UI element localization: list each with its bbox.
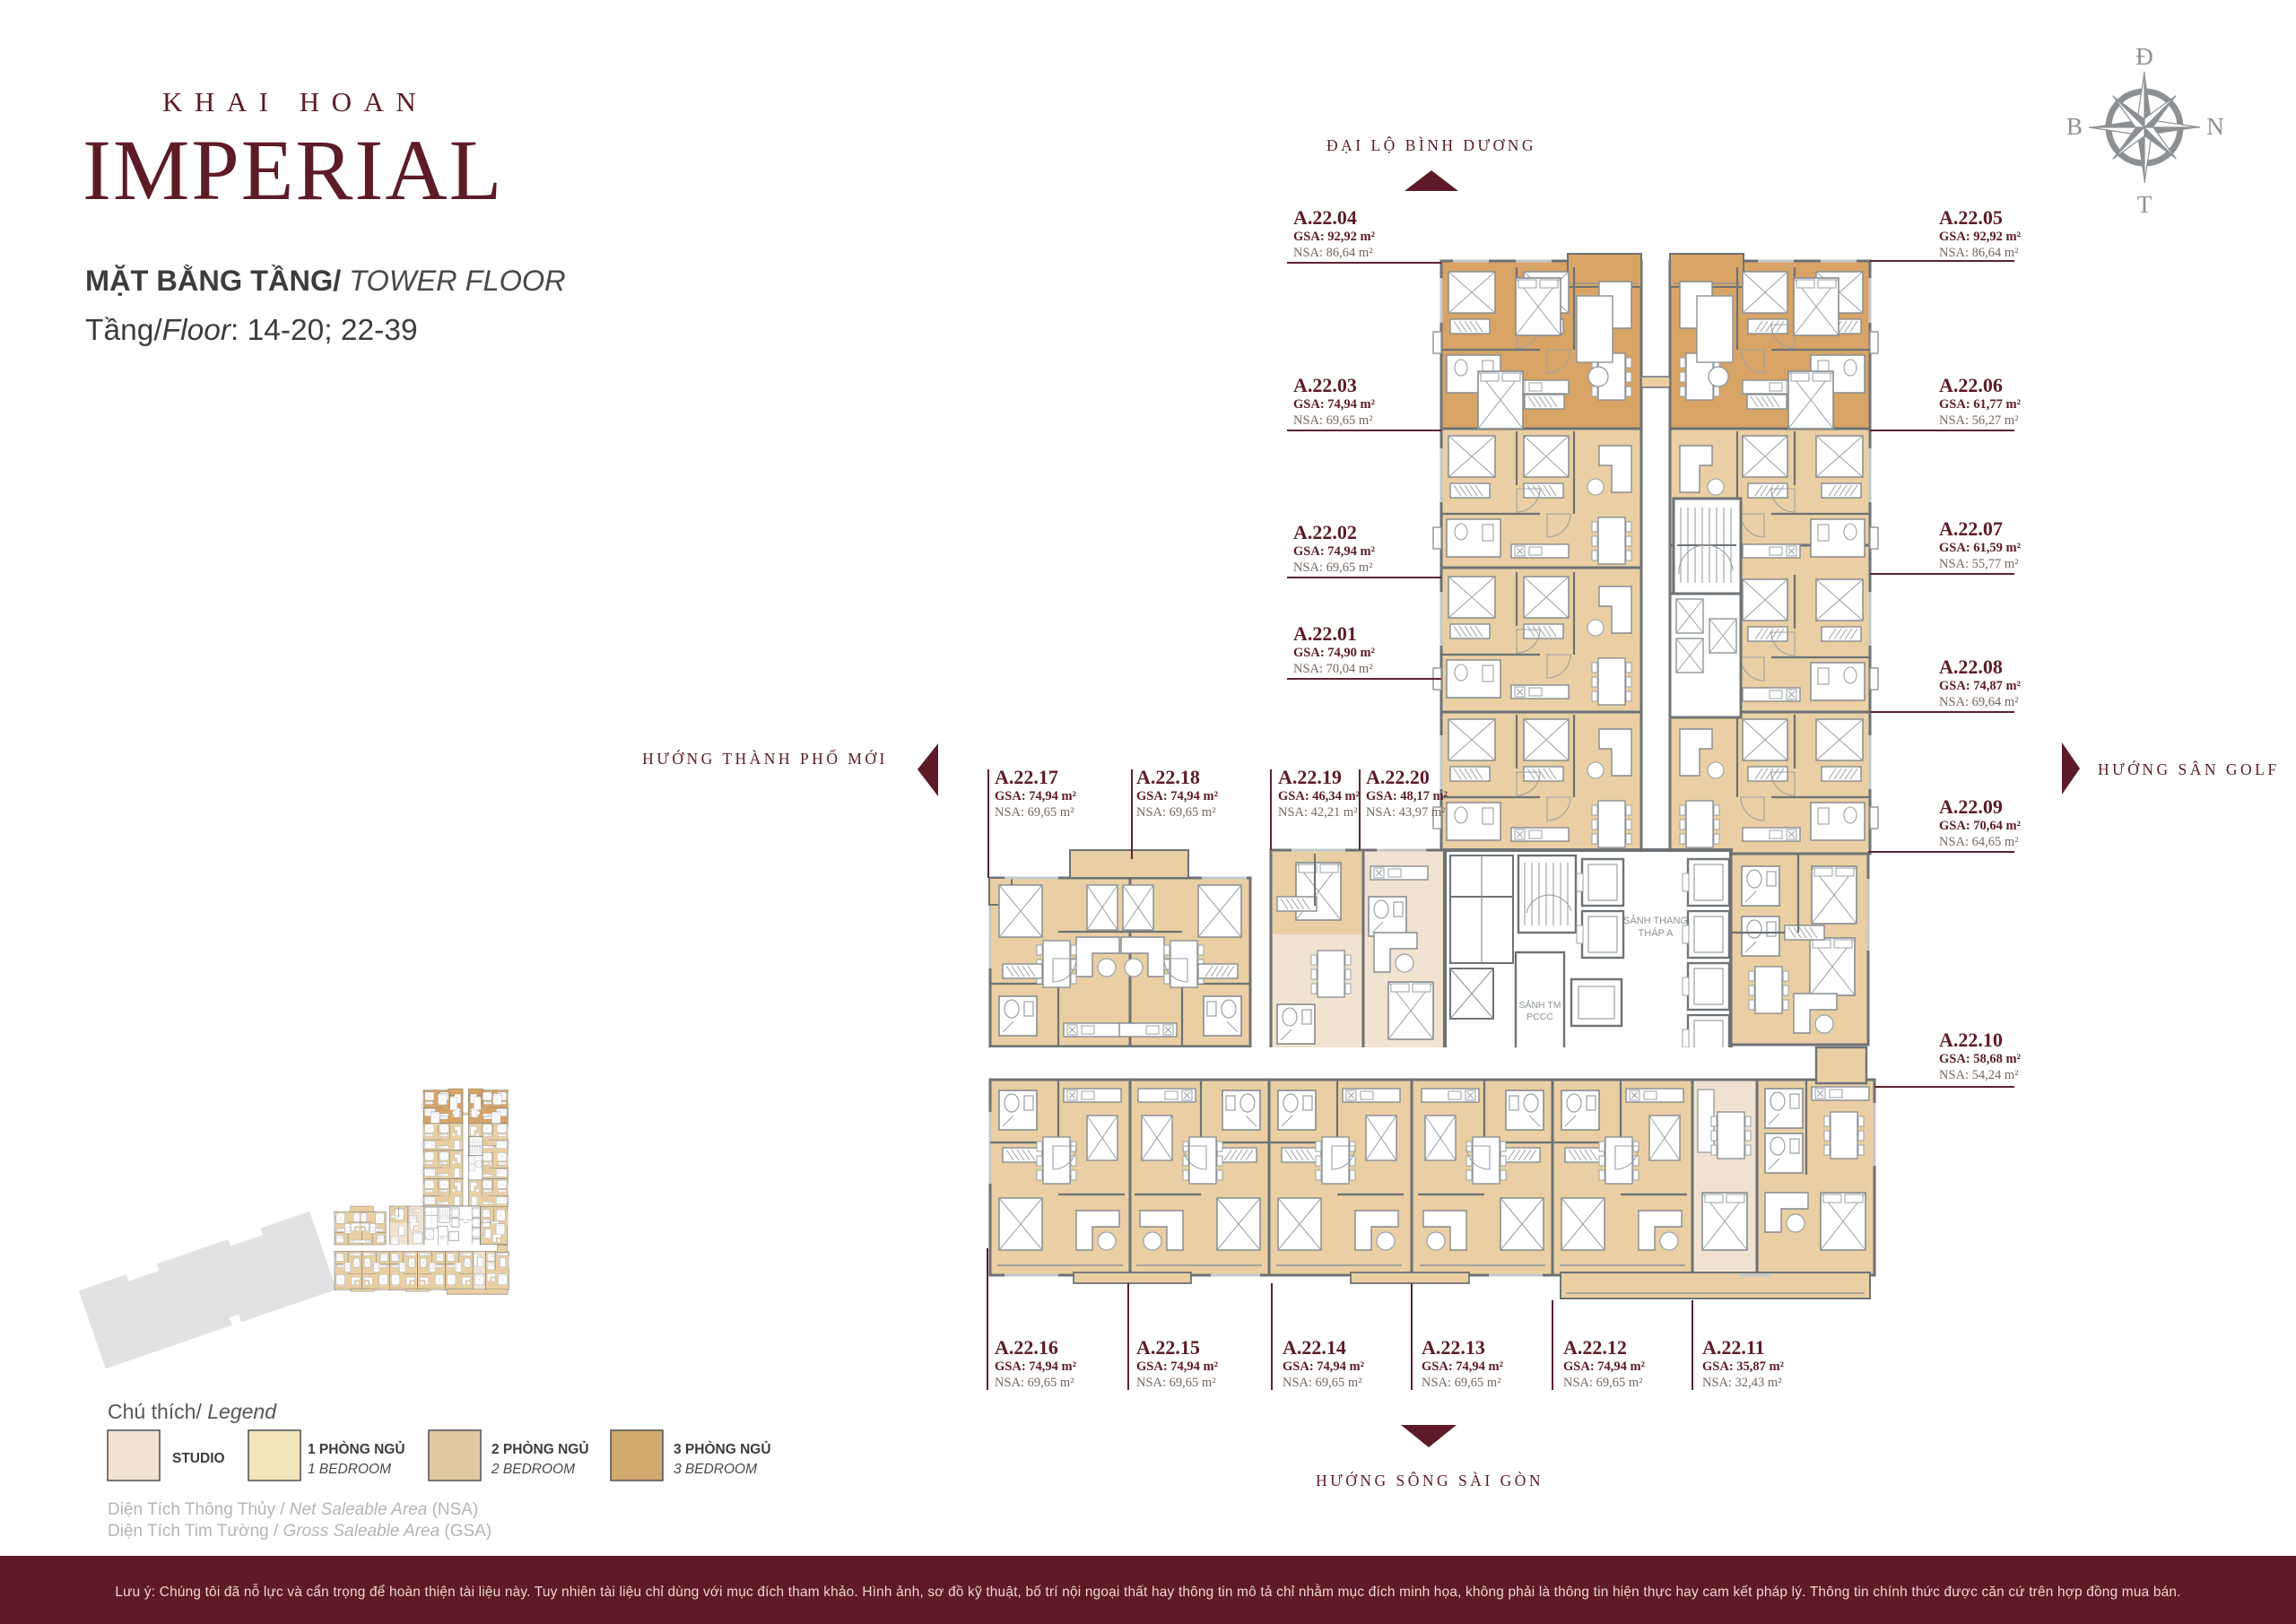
svg-text:THÁP A: THÁP A [1639, 927, 1674, 939]
svg-text:A.22.04: A.22.04 [1293, 206, 1357, 229]
svg-text:NSA: 69,65 m²: NSA: 69,65 m² [995, 1376, 1074, 1390]
svg-text:GSA: 74,94 m²: GSA: 74,94 m² [1293, 397, 1375, 412]
svg-text:GSA: 74,94 m²: GSA: 74,94 m² [1136, 789, 1218, 803]
svg-text:GSA: 74,94 m²: GSA: 74,94 m² [1422, 1359, 1503, 1374]
svg-text:GSA: 61,59 m²: GSA: 61,59 m² [1939, 541, 2021, 555]
svg-text:Chú thích/ Legend: Chú thích/ Legend [108, 1400, 277, 1423]
svg-text:B: B [2066, 113, 2083, 140]
svg-text:NSA: 69,65 m²: NSA: 69,65 m² [995, 805, 1074, 820]
svg-text:PCCC: PCCC [1526, 1012, 1553, 1022]
svg-text:IMPERIAL: IMPERIAL [83, 122, 503, 218]
svg-text:A.22.20: A.22.20 [1366, 766, 1430, 788]
svg-text:A.22.01: A.22.01 [1293, 622, 1357, 645]
svg-text:NSA: 64,65 m²: NSA: 64,65 m² [1939, 835, 2019, 849]
svg-text:A.22.11: A.22.11 [1702, 1336, 1765, 1359]
svg-text:NSA: 69,65 m²: NSA: 69,65 m² [1563, 1376, 1643, 1390]
svg-text:GSA: 92,92 m²: GSA: 92,92 m² [1939, 230, 2021, 244]
svg-text:A.22.16: A.22.16 [995, 1336, 1058, 1359]
svg-text:GSA: 46,34 m²: GSA: 46,34 m² [1278, 789, 1360, 803]
svg-text:A.22.09: A.22.09 [1939, 795, 2003, 818]
svg-text:NSA: 69,65 m²: NSA: 69,65 m² [1283, 1376, 1362, 1390]
svg-text:A.22.18: A.22.18 [1136, 766, 1200, 788]
svg-text:GSA: 35,87 m²: GSA: 35,87 m² [1702, 1359, 1784, 1374]
svg-text:GSA: 74,90 m²: GSA: 74,90 m² [1293, 646, 1375, 660]
svg-text:2 BEDROOM: 2 BEDROOM [491, 1462, 575, 1477]
svg-text:A.22.15: A.22.15 [1136, 1336, 1200, 1359]
svg-text:GSA: 74,94 m²: GSA: 74,94 m² [1563, 1359, 1645, 1374]
svg-text:GSA: 58,68 m²: GSA: 58,68 m² [1939, 1052, 2021, 1066]
svg-text:ĐẠI LỘ BÌNH DƯƠNG: ĐẠI LỘ BÌNH DƯƠNG [1326, 136, 1536, 154]
svg-text:STUDIO: STUDIO [172, 1451, 225, 1466]
svg-text:1 PHÒNG NGỦ: 1 PHÒNG NGỦ [308, 1441, 405, 1457]
svg-text:GSA: 74,94 m²: GSA: 74,94 m² [1136, 1359, 1218, 1374]
svg-text:GSA: 74,94 m²: GSA: 74,94 m² [995, 789, 1076, 803]
svg-text:A.22.06: A.22.06 [1939, 374, 2003, 396]
svg-text:NSA: 69,64 m²: NSA: 69,64 m² [1939, 695, 2019, 709]
svg-text:NSA: 69,65 m²: NSA: 69,65 m² [1293, 560, 1373, 575]
svg-text:GSA: 70,64 m²: GSA: 70,64 m² [1939, 819, 2021, 833]
svg-text:NSA: 86,64 m²: NSA: 86,64 m² [1293, 246, 1373, 260]
svg-text:NSA: 42,21 m²: NSA: 42,21 m² [1278, 805, 1358, 820]
svg-text:A.22.17: A.22.17 [995, 766, 1058, 788]
svg-text:Tầng/Floor: 14-20; 22-39: Tầng/Floor: 14-20; 22-39 [85, 314, 418, 347]
svg-text:N: N [2206, 113, 2224, 140]
svg-text:T: T [2137, 191, 2152, 218]
svg-text:A.22.13: A.22.13 [1422, 1336, 1485, 1359]
svg-text:NSA: 56,27 m²: NSA: 56,27 m² [1939, 413, 2019, 428]
svg-text:3 PHÒNG NGỦ: 3 PHÒNG NGỦ [674, 1441, 771, 1457]
svg-text:MẶT BẰNG TẦNG/ TOWER FLOOR: MẶT BẰNG TẦNG/ TOWER FLOOR [85, 264, 566, 297]
svg-text:Đ: Đ [2135, 43, 2153, 70]
svg-text:Diện Tích Thông Thủy / Net Sal: Diện Tích Thông Thủy / Net Saleable Area… [108, 1500, 478, 1519]
svg-text:NSA: 54,24 m²: NSA: 54,24 m² [1939, 1068, 2019, 1082]
svg-text:NSA: 55,77 m²: NSA: 55,77 m² [1939, 557, 2019, 571]
svg-text:NSA: 70,04 m²: NSA: 70,04 m² [1293, 662, 1373, 676]
svg-text:GSA: 74,94 m²: GSA: 74,94 m² [995, 1359, 1076, 1374]
svg-text:HƯỚNG SÂN GOLF: HƯỚNG SÂN GOLF [2098, 760, 2280, 778]
svg-text:A.22.19: A.22.19 [1278, 766, 1342, 788]
svg-text:A.22.10: A.22.10 [1939, 1029, 2003, 1051]
svg-text:A.22.08: A.22.08 [1939, 656, 2003, 678]
svg-text:A.22.02: A.22.02 [1293, 521, 1357, 543]
svg-text:HƯỚNG SÔNG SÀI GÒN: HƯỚNG SÔNG SÀI GÒN [1316, 1472, 1544, 1489]
svg-text:1 BEDROOM: 1 BEDROOM [308, 1462, 391, 1477]
svg-text:HƯỚNG THÀNH PHỐ MỚI: HƯỚNG THÀNH PHỐ MỚI [642, 750, 888, 768]
svg-text:GSA: 48,17 m²: GSA: 48,17 m² [1366, 789, 1448, 803]
svg-text:2 PHÒNG NGỦ: 2 PHÒNG NGỦ [491, 1441, 589, 1457]
svg-text:A.22.07: A.22.07 [1939, 517, 2003, 540]
svg-text:A.22.05: A.22.05 [1939, 206, 2003, 229]
svg-text:A.22.03: A.22.03 [1293, 374, 1357, 396]
svg-text:GSA: 74,94 m²: GSA: 74,94 m² [1283, 1359, 1364, 1374]
svg-text:NSA: 69,65 m²: NSA: 69,65 m² [1422, 1376, 1501, 1390]
svg-text:A.22.12: A.22.12 [1563, 1336, 1627, 1359]
svg-text:NSA: 69,65 m²: NSA: 69,65 m² [1293, 413, 1373, 428]
svg-text:GSA: 92,92 m²: GSA: 92,92 m² [1293, 230, 1375, 244]
svg-text:GSA: 74,87 m²: GSA: 74,87 m² [1939, 679, 2021, 693]
svg-text:NSA: 86,64 m²: NSA: 86,64 m² [1939, 246, 2019, 260]
svg-text:NSA: 69,65 m²: NSA: 69,65 m² [1136, 1376, 1216, 1390]
svg-text:NSA: 32,43 m²: NSA: 32,43 m² [1702, 1376, 1782, 1390]
svg-text:A.22.14: A.22.14 [1283, 1336, 1346, 1359]
svg-text:SẢNH THANG: SẢNH THANG [1623, 915, 1688, 926]
svg-text:GSA: 74,94 m²: GSA: 74,94 m² [1293, 544, 1375, 559]
svg-text:NSA: 43,97 m²: NSA: 43,97 m² [1366, 805, 1446, 820]
svg-text:3 BEDROOM: 3 BEDROOM [674, 1462, 757, 1477]
svg-text:KHAI HOAN: KHAI HOAN [162, 86, 428, 117]
svg-text:GSA: 61,77 m²: GSA: 61,77 m² [1939, 397, 2021, 412]
svg-text:NSA: 69,65 m²: NSA: 69,65 m² [1136, 805, 1216, 820]
svg-text:Diện Tích Tim Tường / Gross Sa: Diện Tích Tim Tường / Gross Saleable Are… [108, 1522, 491, 1541]
svg-text:SẢNH TM: SẢNH TM [1518, 999, 1561, 1011]
svg-text:Lưu ý: Chúng tôi đã nỗ lực và: Lưu ý: Chúng tôi đã nỗ lực và cẩn trọng … [115, 1585, 2180, 1600]
